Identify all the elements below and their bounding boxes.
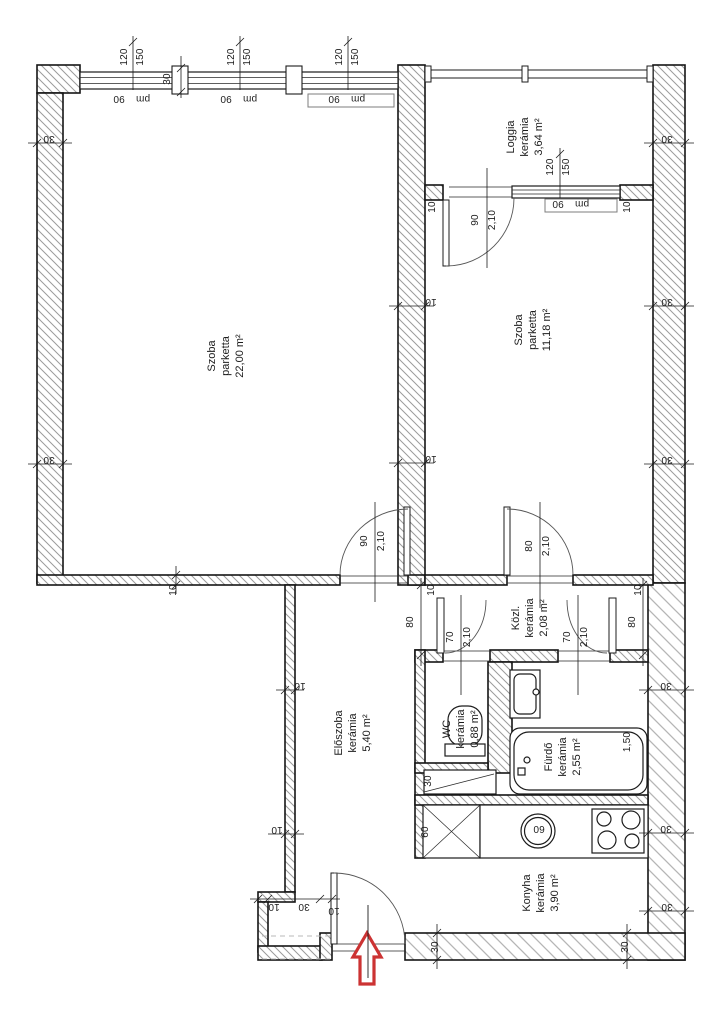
railing-post-left: [425, 66, 431, 82]
railing-post-middle: [522, 66, 528, 82]
dim-shelf-depth: 30: [423, 775, 434, 787]
wall-entrance-left: [258, 946, 322, 960]
door-leaf-wc: [437, 598, 444, 653]
dim-kitchen-sink: 60: [533, 823, 545, 834]
door-leaf-bath: [609, 598, 616, 653]
room-area: 0,88 m²: [469, 710, 481, 748]
room-label-konyha: Konyha kerámia 3,90 m²: [521, 873, 561, 913]
room-area: 2,08 m²: [538, 599, 550, 637]
door-arc-entrance: [334, 873, 405, 944]
wall-loggia-bottom-right: [620, 185, 653, 200]
room-area: 11,18 m²: [541, 308, 553, 351]
room-area: 2,55 m²: [571, 738, 583, 776]
dim-bottom-wall-1: 30: [430, 941, 441, 953]
bathtub-tap: [524, 757, 530, 763]
room-material: parketta: [220, 335, 232, 376]
dim-bathtub-length: 1,50: [622, 732, 633, 753]
room-label-szoba-nagy: Szoba parketta 22,00 m²: [206, 334, 246, 378]
wall-exterior-left: [37, 93, 63, 583]
room-name: WC: [441, 720, 453, 738]
dim-separating-wall-1: 10: [425, 296, 437, 307]
floor-plan-page: 120 150 120 150 120 150 90 pm 90 pm 90 p…: [0, 0, 720, 1024]
dim-mullion-width: 30: [162, 73, 173, 85]
wall-top-left-corner: [37, 65, 80, 93]
stove-burner-2: [622, 811, 640, 829]
threshold-loggia-door: [449, 187, 512, 197]
dim-hall-wall-2: 10: [271, 824, 283, 835]
dim-livingroom-door-width: 90: [359, 535, 370, 547]
shelf-unit: [424, 770, 496, 794]
dim-bath-door-height: 2,10: [579, 627, 590, 648]
room-area: 5,40 m²: [361, 714, 373, 752]
room-area: 22,00 m²: [234, 334, 246, 378]
room-material: kerámia: [519, 117, 531, 157]
dim-bath-door-width: 70: [562, 631, 573, 643]
window-band-living-room: [80, 72, 398, 89]
dim-hallway-depth-right: 80: [627, 616, 638, 628]
dim-cabinet-depth: 60: [420, 826, 431, 838]
wall-livingroom-bottom: [37, 575, 340, 585]
dim-right-wall-6: 30: [661, 901, 673, 912]
dim-window2-parapet: 90: [220, 93, 232, 104]
room-name: Loggia: [505, 120, 517, 154]
dim-loggia-window-pm: pm: [575, 198, 589, 209]
dim-loggia-door-width: 90: [470, 214, 481, 226]
wall-hall-left: [285, 585, 295, 892]
dim-livingroom-bottom-wall: 10: [168, 584, 179, 596]
wall-entrance-jamb: [320, 933, 332, 960]
dim-right-wall-2: 30: [661, 296, 673, 307]
dim-bedroom-door-width: 80: [524, 540, 535, 552]
dim-jog-2: 30: [298, 901, 310, 912]
door-leaf-bedroom: [504, 507, 510, 575]
wall-bedroom-bottom-left: [425, 575, 507, 585]
dim-left-wall-1: 30: [43, 133, 55, 144]
bath-sink-tap: [533, 689, 539, 695]
dim-loggia-jamb-left: 10: [427, 201, 438, 213]
room-name: Szoba: [513, 314, 525, 346]
stove-burner-1: [597, 812, 611, 826]
wall-exterior-bottom: [405, 933, 685, 960]
dim-hallway-jamb-right: 10: [633, 584, 644, 596]
room-label-wc: WC kerámia 0,88 m²: [441, 709, 481, 749]
room-label-eloszoba: Előszoba kerámia 5,40 m²: [333, 709, 373, 755]
floor-plan-drawing: 120 150 120 150 120 150 90 pm 90 pm 90 p…: [0, 0, 720, 1024]
railing-post-right: [647, 66, 653, 82]
dim-window1-height: 150: [135, 48, 146, 66]
dim-right-wall-5: 30: [660, 823, 672, 834]
dim-window2-height: 150: [242, 48, 253, 66]
loggia-railing: [425, 70, 653, 78]
door-arc-loggia: [446, 198, 514, 266]
stove-burner-4: [625, 834, 639, 848]
dim-jog-1: 10: [268, 901, 280, 912]
wall-loggia-bottom-left: [425, 185, 443, 200]
entrance-arrow-icon: [353, 933, 381, 984]
room-material: kerámia: [535, 873, 547, 913]
dim-wc-door-height: 2,10: [462, 627, 473, 648]
dim-jog-3: 10: [328, 905, 340, 916]
door-leaf-living-room: [404, 507, 410, 575]
dim-wc-door-width: 70: [445, 631, 456, 643]
dim-window2-pm: pm: [243, 93, 257, 104]
dim-loggia-door-height: 2,10: [487, 210, 498, 231]
dim-right-wall-4: 30: [660, 680, 672, 691]
room-name: Konyha: [521, 873, 533, 911]
room-name: Szoba: [206, 340, 218, 372]
dim-window3-pm: pm: [351, 93, 365, 104]
dim-hall-wall-1: 10: [294, 680, 306, 691]
dim-livingroom-door-height: 2,10: [376, 531, 387, 552]
room-material: kerámia: [557, 737, 569, 777]
wall-bedroom-bottom-right: [573, 575, 653, 585]
dim-loggia-jamb-right: 10: [622, 201, 633, 213]
dim-loggia-window-parapet: 90: [552, 198, 564, 209]
dim-window2-width: 120: [226, 48, 237, 66]
room-name: Közl.: [510, 606, 522, 630]
windows: [80, 66, 653, 212]
window-mullion-2: [286, 66, 302, 94]
dim-bottom-wall-2: 30: [620, 941, 631, 953]
dim-right-wall-3: 30: [661, 454, 673, 465]
wall-hall-jog: [258, 892, 295, 902]
dim-left-wall-2: 30: [43, 454, 55, 465]
dim-hallway-jamb-left: 10: [426, 584, 437, 596]
dim-window1-pm: pm: [136, 93, 150, 104]
room-material: kerámia: [455, 709, 467, 749]
wall-shaft-wc-bath: [488, 662, 512, 773]
room-area: 3,90 m²: [549, 874, 561, 912]
dim-loggia-window-height: 150: [561, 158, 572, 176]
dim-bedroom-door-height: 2,10: [541, 536, 552, 557]
dim-window3-width: 120: [334, 48, 345, 66]
room-label-loggia: Loggia kerámia 3,64 m²: [505, 117, 545, 157]
wall-bath-bottom: [415, 795, 648, 805]
dim-loggia-window-width: 120: [545, 158, 556, 176]
bathtub-drain: [518, 768, 525, 775]
dim-separating-wall-2: 10: [425, 453, 437, 464]
room-material: kerámia: [347, 713, 359, 753]
dim-window1-parapet: 90: [113, 93, 125, 104]
wall-hall-jog-lower: [258, 902, 268, 952]
room-material: parketta: [527, 309, 539, 350]
wall-hallway-bottom-middle: [490, 650, 558, 662]
room-area: 3,64 m²: [533, 118, 545, 156]
room-name: Előszoba: [333, 709, 345, 755]
stove-burner-3: [598, 831, 616, 849]
window-loggia: [512, 186, 620, 198]
entrance-marker: [353, 905, 381, 984]
dim-window3-height: 150: [350, 48, 361, 66]
room-label-szoba-kis: Szoba parketta 11,18 m²: [513, 308, 553, 351]
dim-window1-width: 120: [119, 48, 130, 66]
dim-right-wall-1: 30: [661, 133, 673, 144]
dim-window3-parapet: 90: [328, 93, 340, 104]
door-leaf-loggia: [443, 200, 449, 266]
room-material: kerámia: [524, 598, 536, 638]
room-name: Fürdő: [543, 743, 555, 772]
window-mullion-1: [172, 66, 188, 94]
room-label-kozlekedo: Közl. kerámia 2,08 m²: [510, 598, 550, 638]
dim-hallway-depth-left: 80: [405, 616, 416, 628]
wall-separating-rooms: [398, 65, 425, 585]
bath-sink-basin: [514, 674, 536, 714]
